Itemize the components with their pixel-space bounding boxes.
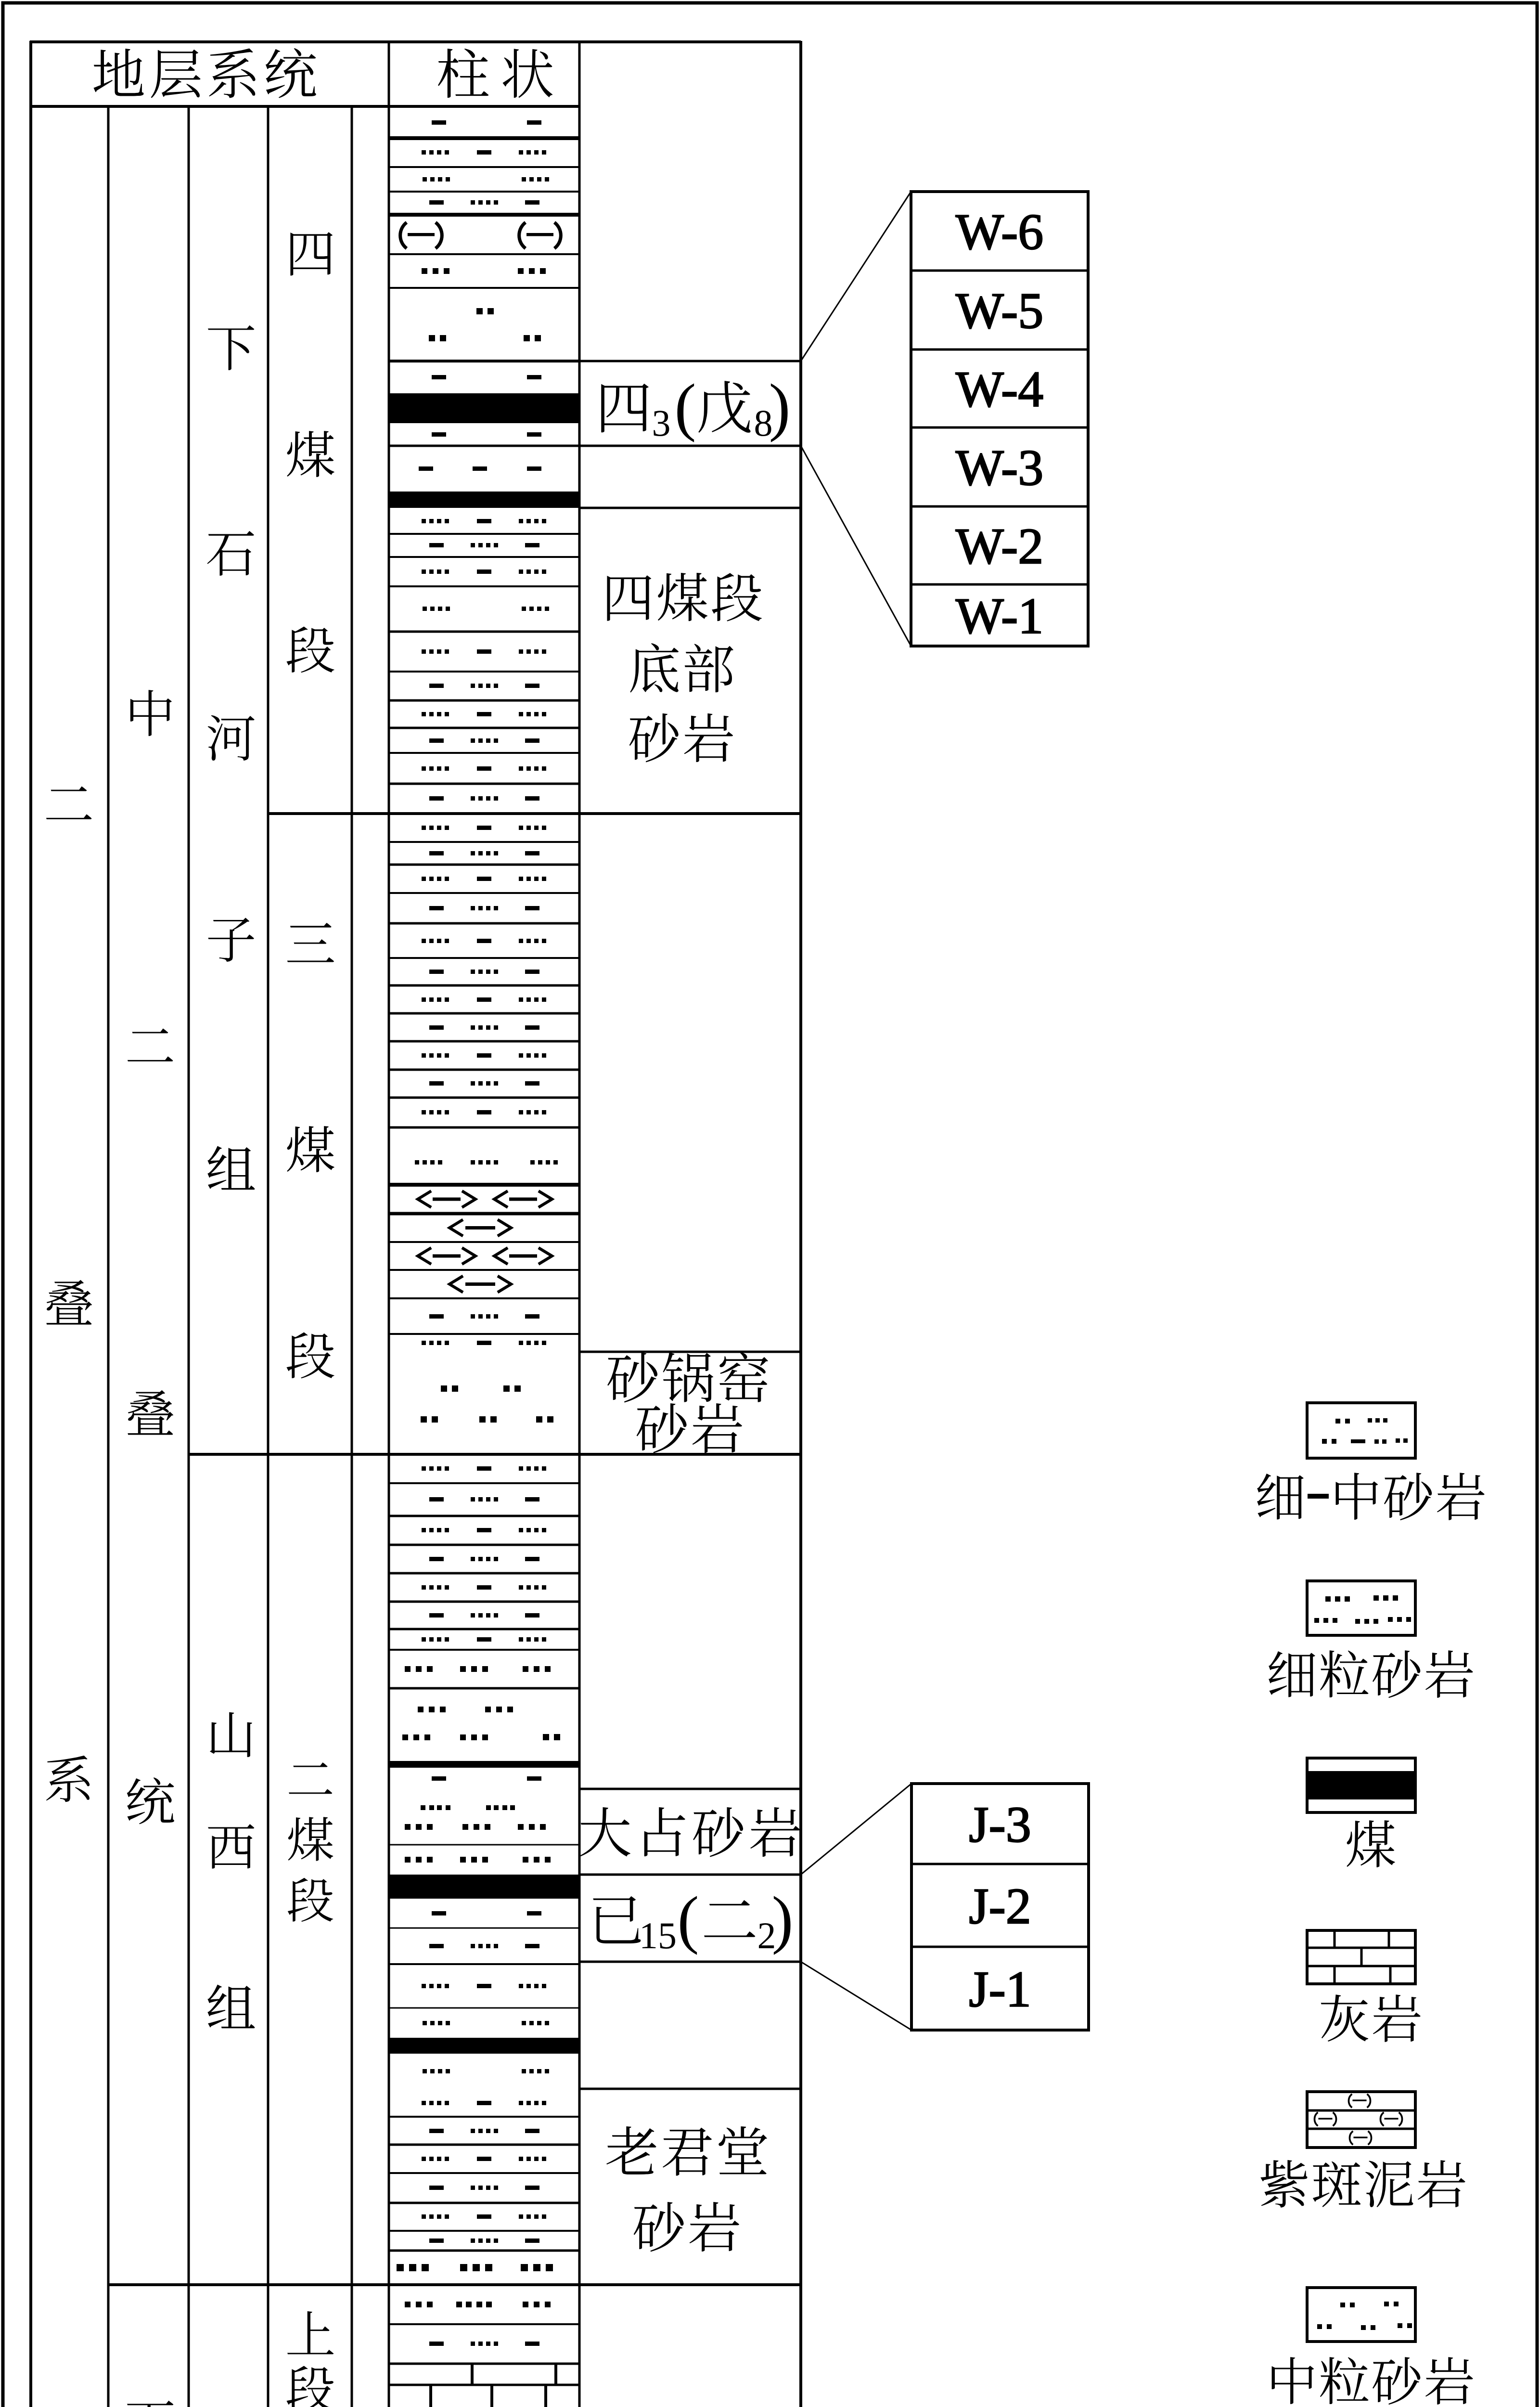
svg-text:): ) [769, 371, 791, 443]
svg-text:(: ( [675, 371, 696, 443]
svg-text:W-5: W-5 [956, 283, 1044, 339]
svg-text:J-3: J-3 [969, 1797, 1031, 1853]
svg-text:J-1: J-1 [969, 1961, 1031, 2018]
svg-text:): ) [772, 1884, 794, 1955]
svg-text:W-4: W-4 [956, 361, 1044, 417]
svg-text:W-1: W-1 [956, 588, 1044, 644]
svg-text:W-6: W-6 [956, 204, 1044, 260]
svg-text:15: 15 [639, 1915, 677, 1956]
svg-text:J-2: J-2 [969, 1878, 1031, 1934]
svg-text:W-2: W-2 [956, 518, 1044, 574]
svg-text:3: 3 [652, 402, 671, 444]
svg-text:(: ( [678, 1884, 699, 1955]
svg-text:W-3: W-3 [956, 440, 1044, 496]
